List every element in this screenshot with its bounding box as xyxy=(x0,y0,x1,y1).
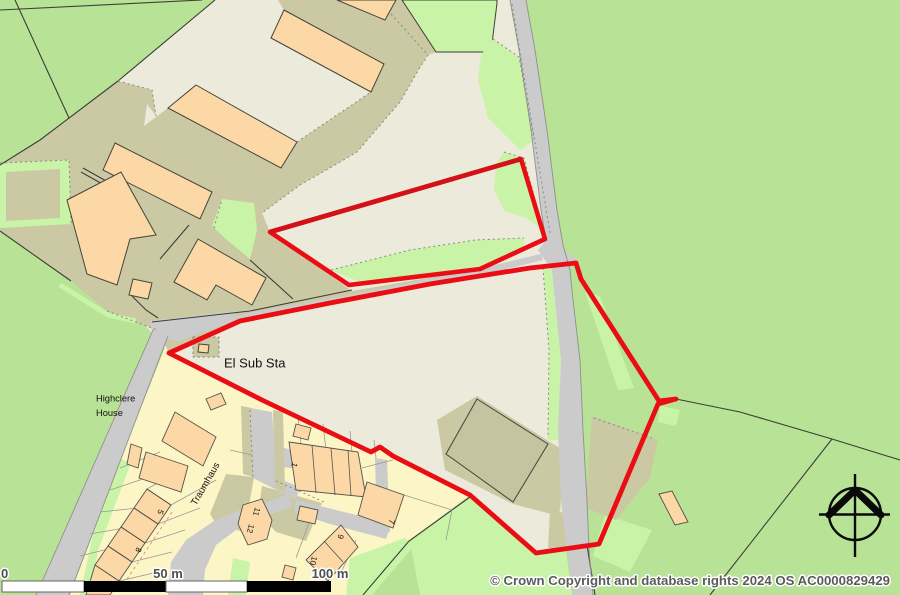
svg-text:Highclere: Highclere xyxy=(96,394,135,404)
svg-text:50 m: 50 m xyxy=(153,566,183,581)
svg-text:House: House xyxy=(96,408,123,418)
svg-text:0: 0 xyxy=(1,566,8,581)
svg-text:© Crown Copyright and database: © Crown Copyright and database rights 20… xyxy=(490,573,890,588)
svg-text:El Sub Sta: El Sub Sta xyxy=(224,356,286,371)
svg-text:100 m: 100 m xyxy=(312,566,349,581)
